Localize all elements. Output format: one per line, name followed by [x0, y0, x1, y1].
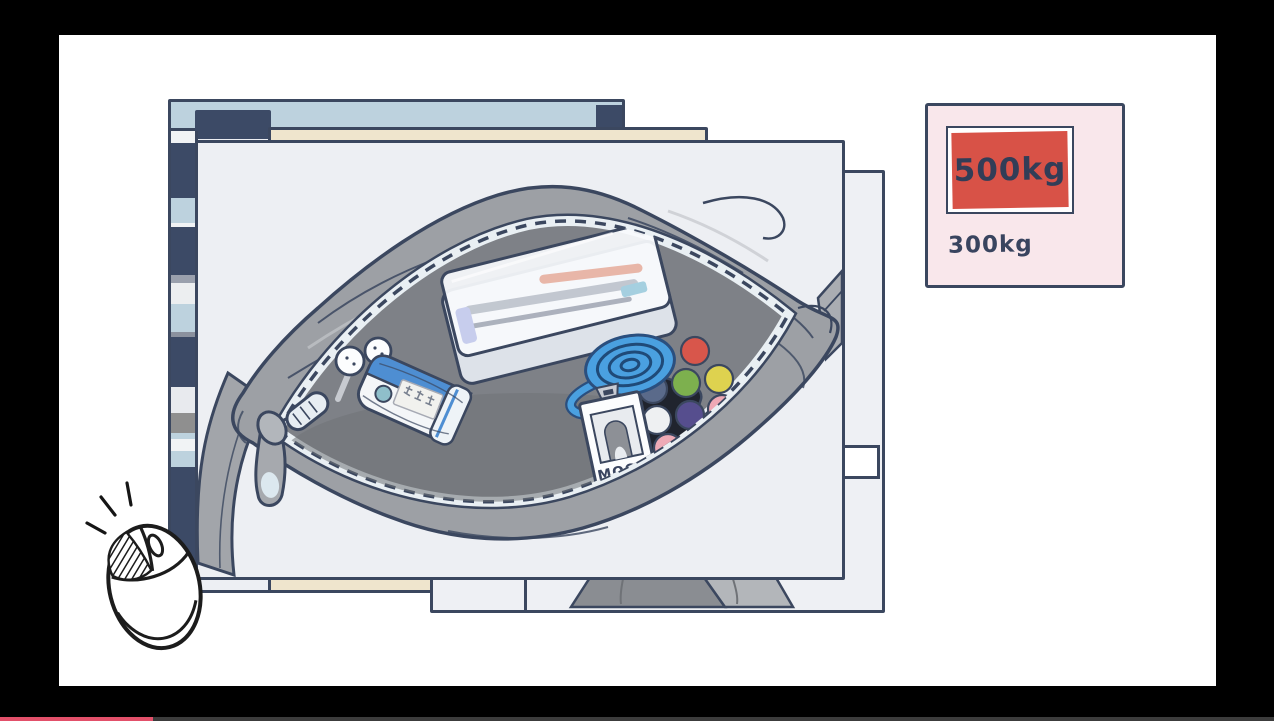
video-progress-bar[interactable]: [0, 717, 1274, 721]
video-frame: MOON: [0, 0, 1274, 721]
video-progress-fill: [0, 717, 153, 721]
weight-limit-highlight: 500kg: [951, 131, 1068, 209]
weight-card: 500kg 300kg: [925, 103, 1125, 288]
bag-illustration: MOON: [198, 143, 842, 577]
app-tab: [195, 110, 271, 139]
slide-canvas: MOON: [59, 35, 1216, 686]
weight-limit-frame: 500kg: [946, 126, 1074, 214]
weight-secondary-label: 300kg: [948, 231, 1033, 258]
mouse-click-icon: [79, 475, 229, 665]
photo-open-bag[interactable]: MOON: [195, 140, 845, 580]
click-lines: [87, 483, 131, 533]
photo-white-divider: [524, 576, 527, 610]
